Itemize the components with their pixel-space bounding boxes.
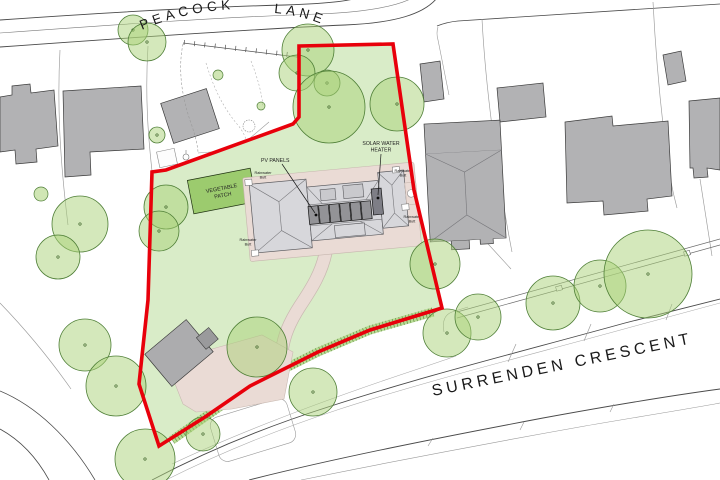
- rainwater-butt: [402, 204, 410, 211]
- solar-water-heater-label-line2: HEATER: [371, 148, 392, 154]
- tree: [370, 77, 424, 131]
- svg-text:Butt: Butt: [260, 175, 268, 179]
- tree: [86, 356, 146, 416]
- pv-panel: [340, 203, 351, 222]
- svg-text:Rainwater: Rainwater: [254, 171, 272, 175]
- tree: [36, 235, 80, 279]
- pv-panels-label: PV PANELS: [261, 158, 290, 164]
- rainwater-butt: [245, 179, 253, 186]
- pv-panel: [361, 201, 372, 220]
- solar-water-heater-panel: [371, 188, 383, 215]
- pv-panel: [319, 205, 330, 224]
- tree: [526, 276, 580, 330]
- tree: [289, 368, 337, 416]
- skylight: [320, 188, 336, 200]
- neighbor-house: [689, 98, 720, 178]
- pv-panel: [308, 206, 319, 225]
- small-shed: [157, 148, 178, 167]
- site-plan-map: VEGETABLE PATCH PV PANELS SOLAR WATER HE…: [0, 0, 720, 480]
- tree: [139, 211, 179, 251]
- pond: [243, 120, 255, 132]
- shrub: [257, 102, 265, 110]
- tree: [455, 294, 501, 340]
- svg-text:Butt: Butt: [400, 173, 408, 177]
- neighbor-outbuilding: [420, 61, 444, 102]
- shrub: [213, 70, 223, 80]
- neighbor-outbuilding: [497, 83, 546, 122]
- rainwater-butt: [251, 250, 259, 257]
- site-plan-page: VEGETABLE PATCH PV PANELS SOLAR WATER HE…: [0, 0, 720, 480]
- neighbor-house-roofed: [424, 120, 507, 251]
- roof-dormer: [334, 223, 365, 238]
- skylight: [343, 184, 364, 199]
- shrub: [34, 187, 48, 201]
- tree: [604, 230, 692, 318]
- main-house: [243, 162, 422, 262]
- pv-panels-leader-dot: [315, 214, 318, 217]
- svg-text:Rainwater: Rainwater: [239, 238, 257, 242]
- pv-panel: [350, 202, 361, 221]
- pv-panel: [329, 204, 340, 223]
- svg-text:Butt: Butt: [409, 219, 417, 223]
- tree: [227, 317, 287, 377]
- tree: [186, 417, 220, 451]
- solar-water-heater-label-line1: SOLAR WATER: [362, 141, 399, 147]
- svg-text:Butt: Butt: [245, 242, 253, 246]
- solar-water-heater-leader-dot: [377, 197, 380, 200]
- tree: [149, 127, 165, 143]
- tree: [293, 71, 365, 143]
